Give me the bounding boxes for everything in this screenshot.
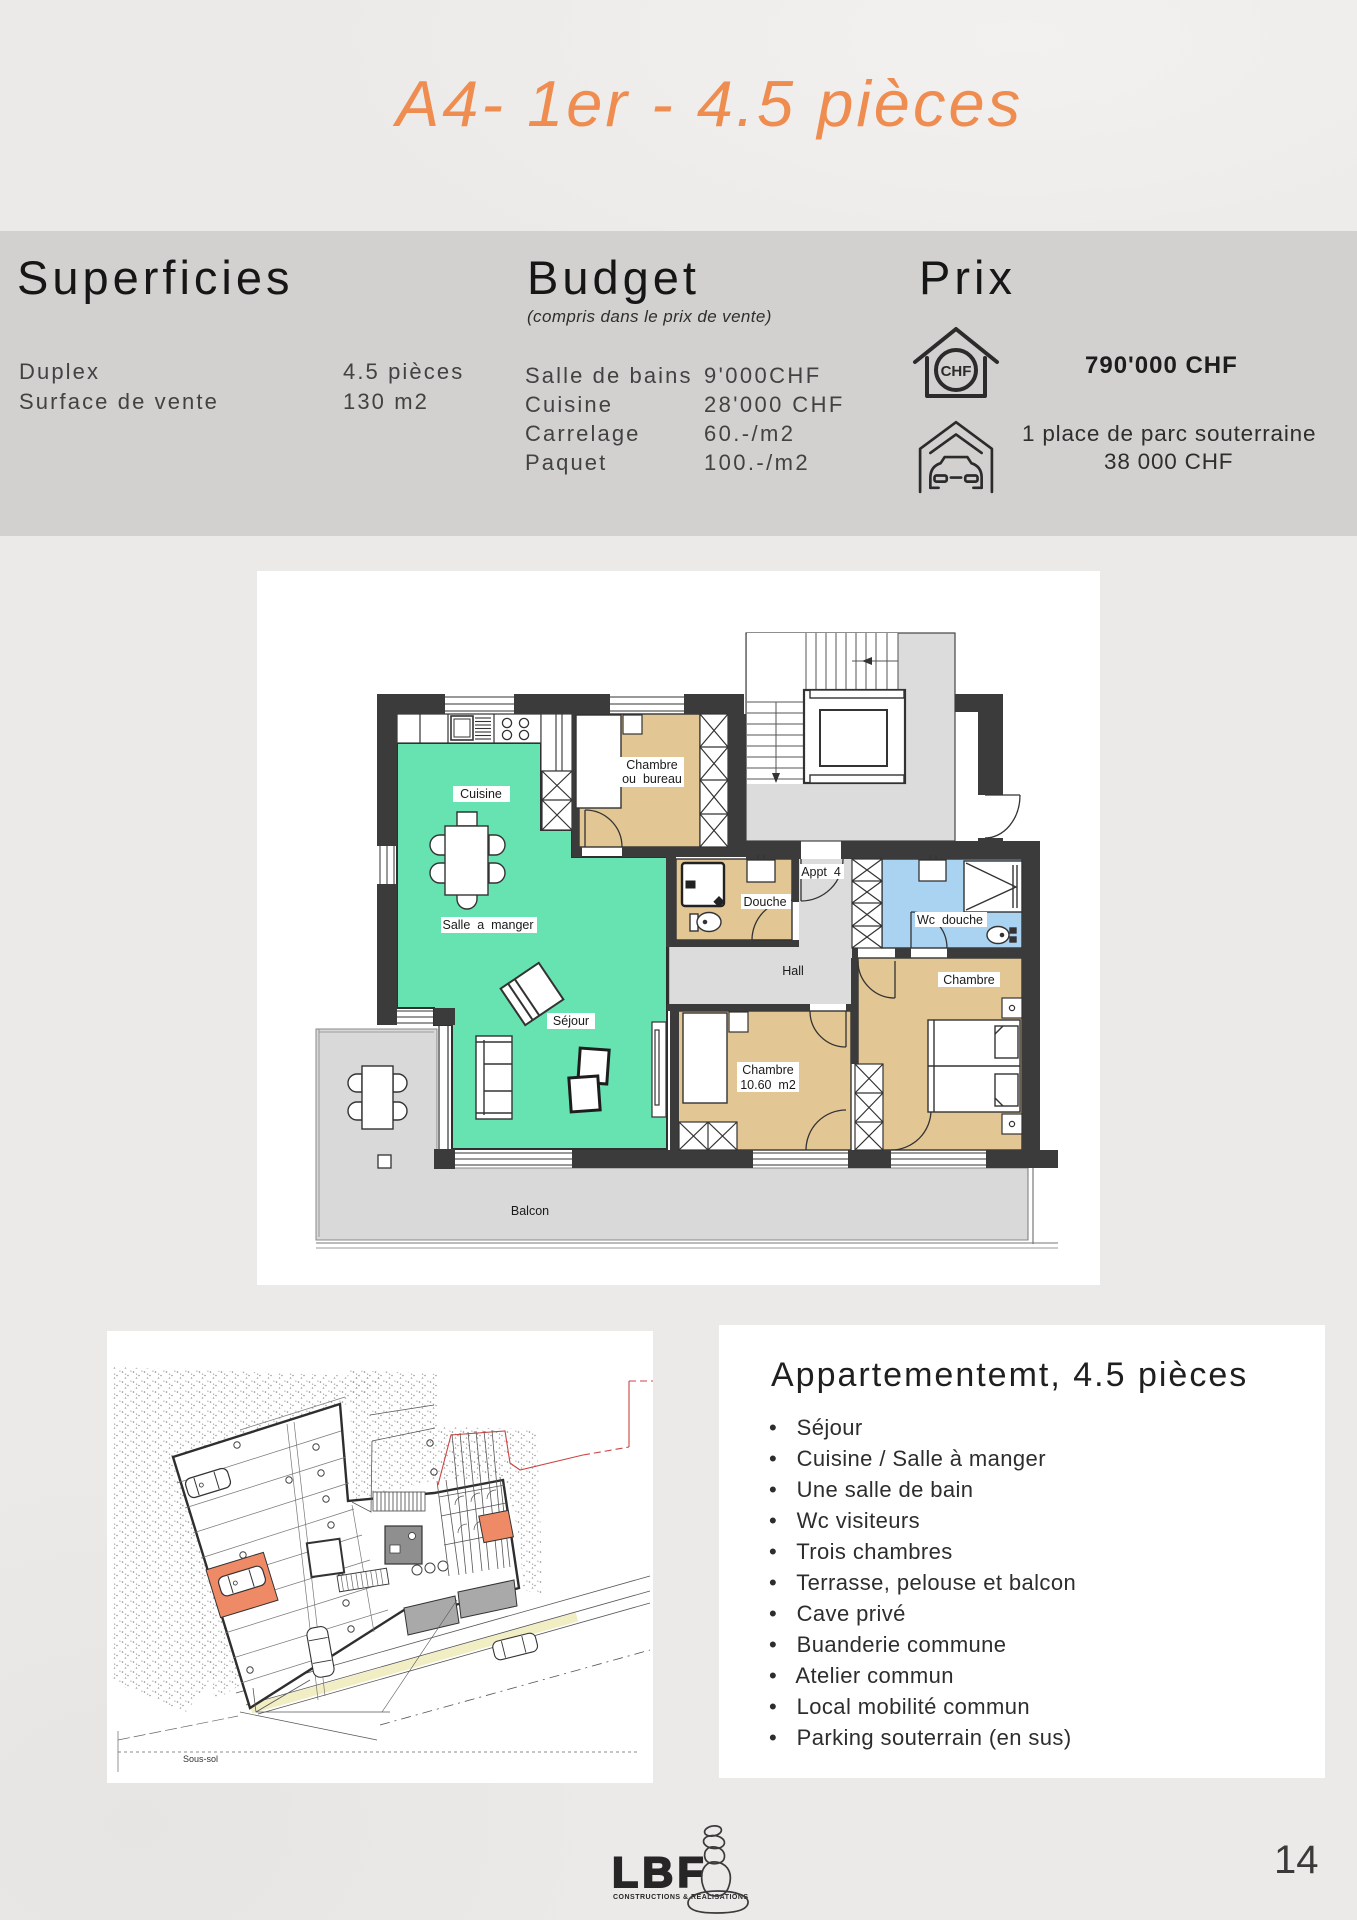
svg-text:Hall: Hall xyxy=(782,964,804,978)
svg-text:Wc douche: Wc douche xyxy=(917,913,983,927)
svg-text:Douche: Douche xyxy=(743,895,786,909)
svg-text:Chambre: Chambre xyxy=(626,758,677,772)
svg-text:Sous-sol: Sous-sol xyxy=(183,1754,218,1764)
svg-text:Chambre: Chambre xyxy=(742,1063,793,1077)
svg-text:Chambre: Chambre xyxy=(943,973,994,987)
svg-text:CHF: CHF xyxy=(941,363,972,380)
svg-text:ou bureau: ou bureau xyxy=(622,772,682,786)
svg-text:Salle a manger: Salle a manger xyxy=(442,918,533,932)
svg-text:Balcon: Balcon xyxy=(511,1204,549,1218)
svg-text:Cuisine: Cuisine xyxy=(460,787,502,801)
svg-text:10.60 m2: 10.60 m2 xyxy=(740,1078,796,1092)
svg-text:Séjour: Séjour xyxy=(553,1014,589,1028)
svg-text:Appt 4: Appt 4 xyxy=(801,865,841,879)
